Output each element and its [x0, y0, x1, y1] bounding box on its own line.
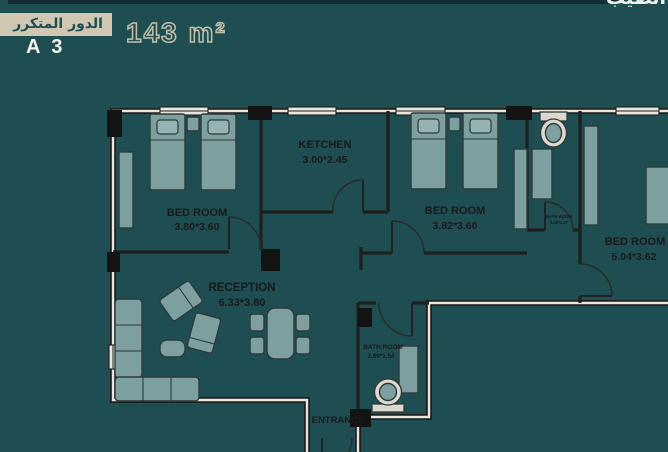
svg-text:RECEPTION: RECEPTION — [208, 282, 275, 294]
room-label-bedroom-middle: BED ROOM 3.82*3.60 — [425, 205, 486, 232]
wardrobe-icon — [584, 126, 598, 225]
room-label-bedroom-right: BED ROOM 5.04*3.62 — [605, 236, 666, 263]
nightstand-icon — [187, 117, 199, 131]
svg-text:3.82*3.60: 3.82*3.60 — [433, 220, 478, 232]
svg-text:3.00*1.27: 3.00*1.27 — [550, 220, 569, 225]
dining-set-icon — [250, 308, 310, 359]
shower-icon — [532, 149, 552, 199]
bed-icon — [463, 113, 498, 189]
bed-icon — [201, 114, 236, 190]
svg-text:3.80*3.60: 3.80*3.60 — [175, 221, 220, 233]
svg-text:2.69*1.54: 2.69*1.54 — [368, 353, 395, 360]
wardrobe-icon — [119, 152, 133, 228]
floorplan-page: { "header": { "floor_banner": "الدور الم… — [0, 0, 668, 452]
room-label-bathroom-bottom: BATH ROOM 2.69*1.54 — [363, 344, 403, 360]
bed-icon — [411, 113, 446, 189]
sofa-icon — [115, 299, 199, 401]
room-label-bedroom-left: BED ROOM 3.80*3.60 — [167, 207, 228, 233]
svg-text:BATH ROOM: BATH ROOM — [546, 214, 573, 219]
armchair-icon — [187, 312, 221, 354]
column — [358, 308, 372, 327]
door-bedroom-middle — [392, 221, 424, 253]
window — [288, 107, 336, 115]
wardrobe-icon — [514, 149, 527, 229]
door-entrance — [322, 438, 352, 452]
svg-text:6.33*3.80: 6.33*3.80 — [218, 297, 265, 309]
nightstand-icon — [449, 117, 460, 131]
column — [107, 252, 120, 272]
room-label-bathroom-top: BATH ROOM 3.00*1.27 — [546, 214, 573, 225]
svg-text:KETCHEN: KETCHEN — [298, 139, 351, 151]
column — [107, 110, 122, 137]
door-bedroom-left — [229, 217, 261, 249]
door-bathroom-bottom — [379, 303, 412, 336]
toilet-icon — [540, 112, 567, 147]
floor-plan: BED ROOM 3.80*3.60 KETCHEN 3.00*2.45 BED… — [0, 0, 668, 452]
svg-text:BED ROOM: BED ROOM — [167, 207, 228, 219]
room-label-kitchen: KETCHEN 3.00*2.45 — [298, 139, 351, 166]
shower-icon — [399, 346, 418, 393]
toilet-icon — [372, 379, 404, 412]
window — [616, 107, 659, 115]
door-bedroom-right — [580, 264, 612, 296]
svg-text:ENTRANCE: ENTRANCE — [312, 415, 365, 426]
svg-text:BED ROOM: BED ROOM — [605, 236, 666, 248]
column — [506, 106, 532, 120]
svg-text:BED ROOM: BED ROOM — [425, 205, 486, 217]
bed-icon — [150, 114, 185, 190]
column — [261, 249, 280, 271]
column — [248, 106, 272, 120]
svg-text:BATH ROOM: BATH ROOM — [363, 344, 403, 351]
room-label-reception: RECEPTION 6.33*3.80 — [208, 282, 275, 309]
room-label-entrance: ENTRANCE — [312, 415, 365, 426]
svg-text:3.00*2.45: 3.00*2.45 — [303, 154, 348, 166]
svg-text:5.04*3.62: 5.04*3.62 — [612, 251, 657, 263]
coffee-table-icon — [160, 340, 185, 357]
bed-icon — [646, 167, 668, 224]
door-kitchen — [333, 180, 363, 212]
